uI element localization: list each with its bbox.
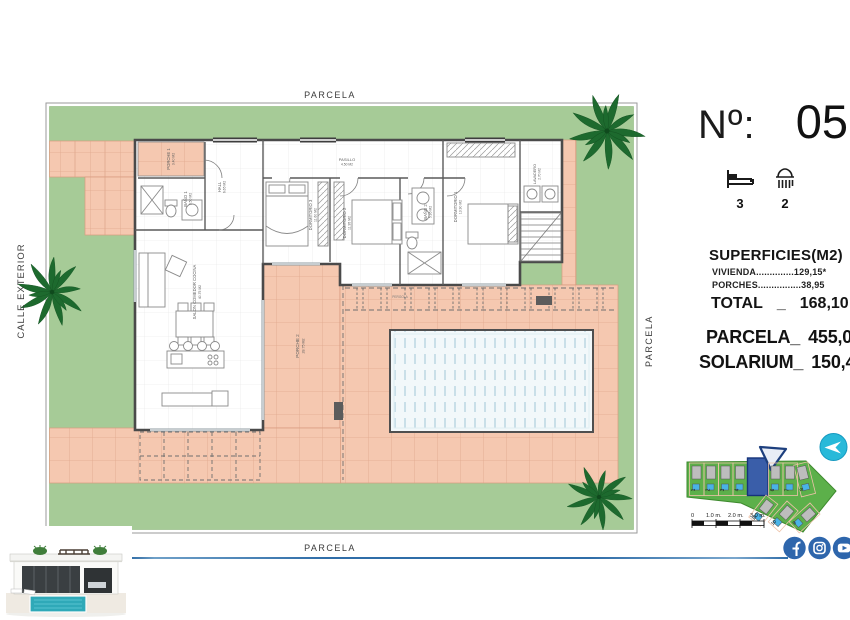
- solarium-value: 150,40: [811, 352, 850, 373]
- site-map: 1 2 3 4 5 6 7 8: [680, 428, 850, 540]
- svg-text:3.50 M2: 3.50 M2: [189, 193, 193, 205]
- svg-text:4.50 M2: 4.50 M2: [341, 163, 353, 167]
- svg-text:3.0 m.: 3.0 m.: [750, 513, 766, 519]
- svg-text:2.70 M2: 2.70 M2: [538, 168, 542, 180]
- svg-text:28.75 M2: 28.75 M2: [302, 339, 306, 354]
- svg-text:PASILLO: PASILLO: [339, 157, 355, 162]
- svg-text:SALON COMEDOR COCINA: SALON COMEDOR COCINA: [192, 264, 197, 319]
- showers-feature: 2: [762, 168, 808, 211]
- side-terrace: [562, 140, 576, 285]
- plot-houses-right: [771, 465, 810, 490]
- villa-render-image: [0, 526, 132, 620]
- bedrooms-feature: 3: [717, 168, 763, 211]
- svg-text:DORMITORIO 1: DORMITORIO 1: [453, 191, 458, 222]
- solarium-label: SOLARIUM_: [699, 352, 803, 373]
- calle-exterior-label: CALLE EXTERIOR: [16, 243, 27, 338]
- solarium-row: SOLARIUM_ 150,40: [699, 352, 850, 373]
- svg-text:6: 6: [770, 488, 776, 491]
- parcela-row: PARCELA_ 455,00: [706, 327, 850, 348]
- svg-text:2: 2: [706, 488, 712, 491]
- shower-count: 2: [762, 196, 808, 211]
- svg-text:DORMITORIO 2: DORMITORIO 2: [342, 207, 347, 238]
- svg-text:BAÑO 2: BAÑO 2: [423, 204, 428, 220]
- total-row: TOTAL _ 168,10: [711, 295, 849, 313]
- surfaces-heading: SUPERFICIES(M2): [709, 247, 843, 264]
- svg-text:PORCHE 2: PORCHE 2: [295, 334, 300, 358]
- parcela-value: 455,00: [808, 327, 850, 348]
- svg-text:3.40 M2: 3.40 M2: [172, 153, 176, 165]
- shower-icon: [770, 168, 800, 190]
- driveway-path: [85, 177, 135, 235]
- svg-text:11.95 M2: 11.95 M2: [348, 216, 352, 230]
- villa-number-row: Nº: 05: [698, 94, 848, 149]
- parcela-label-right: PARCELA: [644, 315, 654, 367]
- svg-text:3: 3: [720, 488, 726, 491]
- svg-text:1.0 m.: 1.0 m.: [706, 513, 722, 519]
- parcela-label-top: PARCELA: [304, 90, 356, 100]
- social-icons: [680, 530, 850, 570]
- svg-text:PORCHE 1: PORCHE 1: [166, 148, 171, 170]
- svg-text:2.0 m.: 2.0 m.: [728, 513, 744, 519]
- bed-icon: [725, 168, 755, 190]
- svg-text:HALL: HALL: [217, 181, 222, 192]
- villa-number: 05: [796, 94, 848, 149]
- youtube-icon[interactable]: [833, 537, 850, 559]
- svg-text:5.95 M2: 5.95 M2: [429, 206, 433, 218]
- svg-text:13.90 M2: 13.90 M2: [459, 200, 463, 214]
- bedroom-count: 3: [717, 196, 763, 211]
- pergola-post: [334, 402, 343, 420]
- divider-line: [128, 557, 788, 559]
- svg-text:DORMITORIO 3: DORMITORIO 3: [308, 199, 313, 230]
- svg-text:1: 1: [691, 488, 697, 491]
- svg-text:7: 7: [785, 488, 791, 491]
- parcela-label-bottom: PARCELA: [304, 543, 356, 553]
- parcela-label: PARCELA_: [706, 327, 800, 348]
- driveway-band: [50, 141, 136, 177]
- svg-text:BAÑO 1: BAÑO 1: [183, 191, 188, 207]
- brochure-page: PERGOLA: [0, 0, 850, 620]
- svg-text:0: 0: [691, 513, 694, 519]
- send-arrow-logo[interactable]: [820, 434, 847, 461]
- svg-text:LAVADERO: LAVADERO: [533, 164, 537, 184]
- vivienda-line: VIVIENDA..............129,15*: [712, 267, 826, 277]
- svg-text:4: 4: [735, 488, 741, 491]
- facebook-icon[interactable]: [783, 537, 805, 559]
- porches-line: PORCHES................38,95: [712, 280, 825, 290]
- instagram-icon[interactable]: [808, 537, 830, 559]
- pergola-post: [536, 296, 552, 305]
- swimming-pool: [390, 330, 593, 432]
- number-label: Nº:: [698, 103, 756, 148]
- bottom-terrace: [50, 428, 341, 483]
- svg-text:11.60 M2: 11.60 M2: [314, 208, 318, 222]
- total-label: TOTAL: [711, 295, 763, 313]
- svg-text:6.65 M2: 6.65 M2: [223, 181, 227, 193]
- pergola-label: PERGOLA: [392, 295, 408, 299]
- total-separator: _: [777, 295, 786, 313]
- svg-text:40.75 M2: 40.75 M2: [198, 285, 202, 299]
- total-value: 168,10: [800, 295, 849, 313]
